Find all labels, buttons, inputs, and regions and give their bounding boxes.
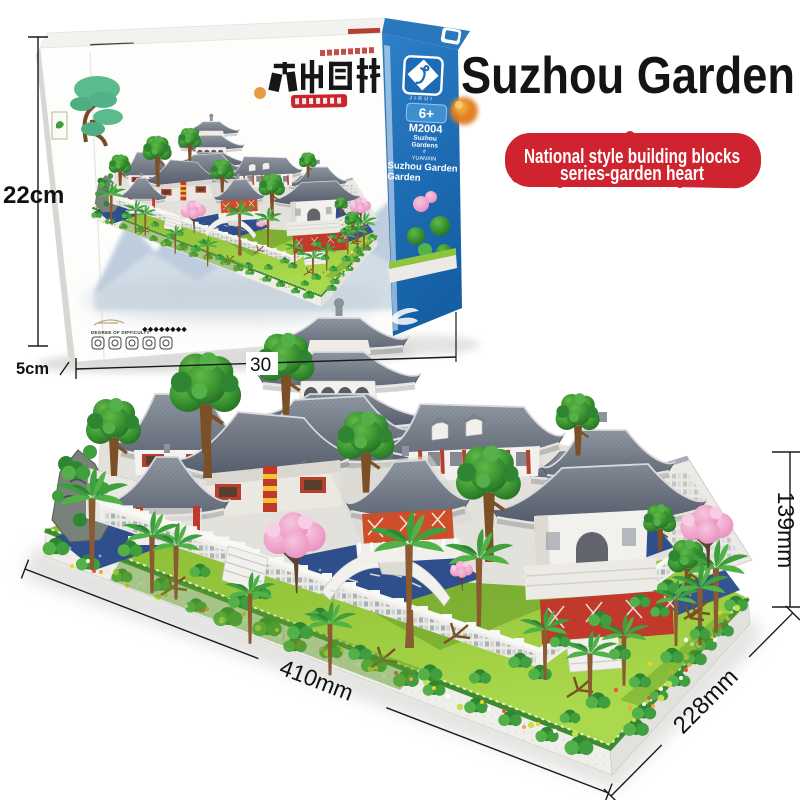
svg-text:DEGREE OF DIFFICULTY: DEGREE OF DIFFICULTY [91,330,150,335]
svg-text:5cm: 5cm [16,360,49,378]
svg-text:22cm: 22cm [3,182,64,209]
svg-text:30: 30 [250,355,271,376]
svg-text:Suzhou Garden: Suzhou Garden [461,47,795,105]
svg-text:6+: 6+ [418,106,434,122]
svg-text:series-garden heart: series-garden heart [560,163,704,185]
svg-text:139mm: 139mm [773,492,799,569]
svg-text:Garden: Garden [387,171,421,184]
svg-text:#: # [423,149,426,155]
